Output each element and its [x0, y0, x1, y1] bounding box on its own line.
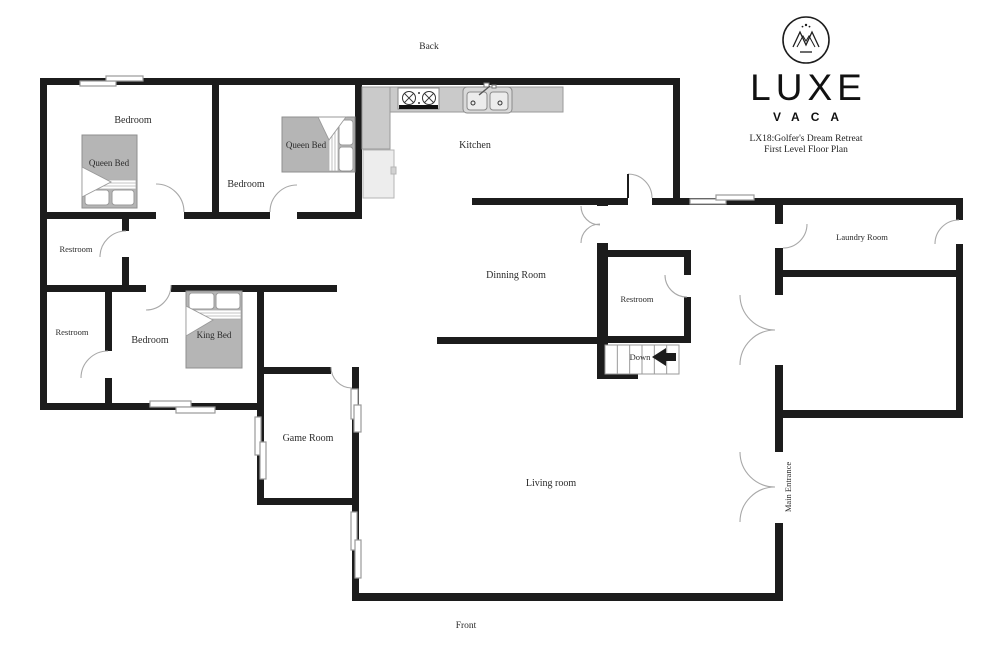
door-arc — [270, 185, 297, 212]
label-restroom-3: Restroom — [620, 294, 653, 304]
sink-basin-left — [467, 92, 487, 110]
label-bedroom-3: Bedroom — [131, 335, 168, 346]
door-arc — [665, 275, 687, 297]
wall-segment — [105, 292, 112, 351]
door-arc — [581, 224, 600, 243]
label-front: Front — [456, 621, 477, 631]
window — [106, 76, 143, 81]
wall-segment — [184, 212, 270, 219]
window — [150, 401, 191, 407]
window — [80, 81, 116, 86]
door-arc — [740, 452, 775, 487]
door-arc — [581, 206, 600, 225]
wall-segment — [257, 367, 331, 374]
wall-segment — [775, 410, 963, 418]
label-restroom-2: Restroom — [55, 327, 88, 337]
window — [354, 405, 361, 432]
wall-segment — [775, 365, 783, 412]
door-arc — [740, 487, 775, 522]
wall-segment — [257, 498, 353, 505]
door-arc — [628, 174, 652, 198]
label-queen-bed-1: Queen Bed — [89, 158, 130, 168]
queen-bed-1-pillow — [112, 190, 134, 205]
brand-name: LUXE — [740, 69, 872, 107]
stove-dot — [418, 92, 420, 94]
door-arc — [783, 224, 807, 248]
wall-segment — [775, 523, 783, 601]
label-game-room: Game Room — [283, 433, 334, 444]
window — [260, 442, 266, 479]
king-bed-pillow — [216, 293, 240, 309]
wall-segment — [352, 593, 783, 601]
queen-bed-2-pillow — [339, 147, 353, 171]
label-bedroom-2: Bedroom — [227, 179, 264, 190]
brand-block: LUXE VACA LX18:Golfer's Dream Retreat Fi… — [740, 14, 872, 156]
wall-segment — [775, 198, 963, 205]
wall-segment — [775, 270, 963, 277]
faucet-knob-b — [492, 85, 496, 88]
label-king-bed: King Bed — [197, 330, 232, 340]
wall-segment — [40, 212, 156, 219]
wall-segment — [603, 336, 691, 343]
label-main-entrance: Main Entrance — [783, 462, 793, 512]
window — [176, 407, 215, 413]
luxe-logo-icon — [780, 14, 832, 66]
wall-segment — [437, 337, 604, 344]
label-laundry-room: Laundry Room — [836, 232, 888, 242]
wall-segment — [684, 250, 691, 275]
door-arc — [331, 367, 352, 388]
door-arc — [100, 231, 126, 257]
window — [355, 540, 361, 578]
wall-segment — [355, 78, 362, 219]
fridge — [363, 150, 394, 198]
label-back: Back — [419, 42, 439, 52]
faucet-knob-a — [484, 83, 489, 87]
label-bedroom-1: Bedroom — [114, 115, 151, 126]
king-bed-pillow — [189, 293, 214, 309]
wall-segment — [673, 78, 680, 205]
label-living-room: Living room — [526, 478, 576, 489]
wall-segment — [122, 212, 129, 231]
window — [716, 195, 754, 200]
plan-title: LX18:Golfer's Dream Retreat — [740, 134, 872, 145]
label-queen-bed-2: Queen Bed — [286, 140, 327, 150]
label-dining-room: Dinning Room — [486, 270, 546, 281]
plan-subtitle: First Level Floor Plan — [740, 145, 872, 156]
wall-segment — [597, 198, 608, 206]
door-arc — [81, 351, 108, 378]
fridge-handle — [391, 167, 396, 174]
wall-segment — [956, 198, 963, 220]
label-kitchen: Kitchen — [459, 140, 491, 151]
wall-segment — [212, 78, 219, 219]
stove-dot — [418, 102, 420, 104]
label-down: Down — [630, 352, 652, 362]
door-arc — [935, 220, 959, 244]
brand-subname: VACA — [740, 110, 872, 124]
wall-segment — [40, 285, 146, 292]
wall-segment — [297, 212, 362, 219]
door-arc — [156, 184, 184, 212]
door-arc — [740, 295, 775, 330]
wall-segment — [40, 78, 47, 410]
kitchen-counter-column — [362, 87, 390, 149]
stove-bar — [399, 105, 438, 109]
floorplan-page: BackFrontBedroomQueen BedBedroomQueen Be… — [0, 0, 1000, 649]
label-restroom-1: Restroom — [59, 244, 92, 254]
door-arc — [146, 285, 171, 310]
wall-segment — [603, 250, 691, 257]
door-arc — [740, 330, 775, 365]
